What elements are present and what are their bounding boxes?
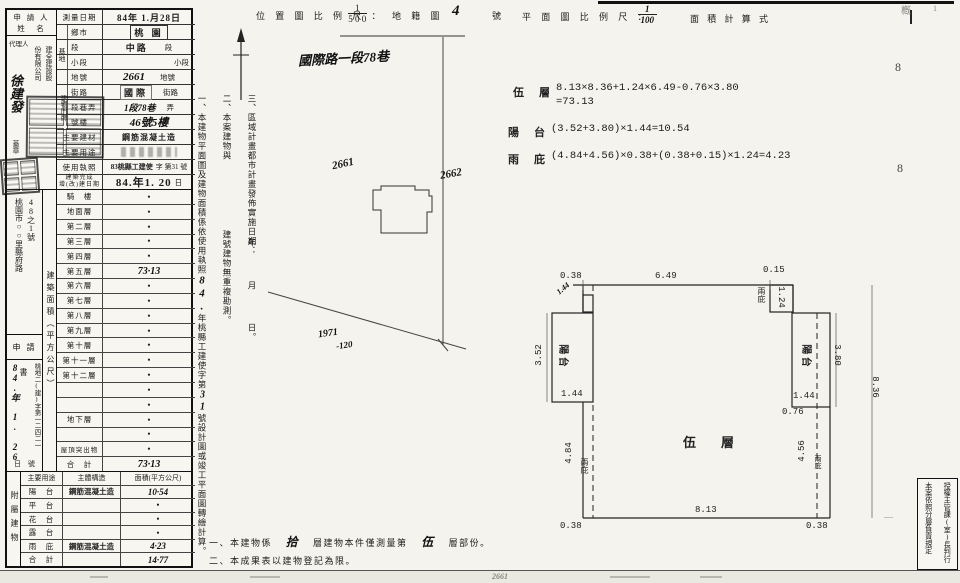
dim-right-canopy: 4.56 (797, 440, 807, 462)
floor-value: • (103, 353, 195, 367)
applicant-title: 申 請 人 姓 名 (7, 10, 56, 36)
row-subsection: 小段 小段 (57, 55, 195, 70)
parcel-no-suffix: 地號 (160, 72, 175, 83)
cut-fragment (610, 576, 650, 578)
attachment-header: 主要用途 主體構造 面積(平方公尺) (21, 472, 195, 486)
dim-bottom-left: 0.38 (560, 521, 582, 531)
row-parcel-no: 地號 2661地號 (57, 70, 195, 85)
attachment-usage: 花 台 (21, 513, 63, 526)
floor-label: 騎 樓 (57, 190, 103, 204)
bottom-note-1b: 層建物本件僅測量第 (313, 538, 408, 548)
row-use-permit: 使用執照 83桃縣工建使字 第31 號 (57, 160, 195, 175)
note1-part-c: 號設計圖或竣工平面圖轉繪計算。 (197, 414, 207, 557)
floor-row: 地面層• (57, 205, 195, 220)
attachment-structure (63, 499, 121, 512)
page-cut-strip: 2661 (0, 570, 960, 583)
parcel-no-value: 2661 (123, 71, 145, 83)
floor-value: • (103, 190, 195, 204)
floor-label (57, 398, 103, 412)
authorization-box: 授權主管課(室)長判行 本案依照分層負責規定 (917, 478, 958, 570)
completion-date-value: 84.年1. 20 (116, 174, 172, 190)
attachment-row-canopy: 雨 庇 鋼筋混凝土造 4·23 (21, 540, 195, 554)
floor-value: • (103, 428, 195, 442)
calc-floor-result: =73.13 (556, 96, 594, 108)
margin-mark-8a: 8 (895, 60, 901, 75)
floor-label: 地面層 (57, 205, 103, 219)
dim-top-right: 0.15 (763, 265, 785, 275)
floor-area-section: 桃園市○○里縣府路 48之1號 申 請 書 桃地二(建)字第一二四二一 84.年… (7, 190, 191, 472)
address-line2: 48之1號 (26, 198, 36, 334)
company-name-col1: 建全建設股 (44, 46, 53, 81)
bottom-note-2: 二、本成果表以建物登記為限。 (209, 554, 356, 567)
calc-floor-expression: 8.13×8.36+1.24×6.49-0.76×3.80 (556, 82, 739, 94)
usage-value-faded-stamp (121, 147, 177, 157)
dim-top: 6.49 (655, 271, 677, 281)
cut-fragment (90, 576, 108, 578)
survey-document-page: 申 請 人 姓 名 代理人 建全建設股 份有限公司 徐建發 蓋章 基地 建物門牌… (0, 0, 960, 583)
attachment-structure (63, 513, 121, 526)
floor-value: • (103, 235, 195, 249)
completion-date-label-1: 建築完成 (65, 175, 93, 182)
completion-date-label: 建築完成 增(改)建日期 (57, 175, 103, 189)
floor-value: • (103, 338, 195, 352)
attachment-area: 10·54 (121, 486, 195, 499)
corner-partial-glyph: 槪 (901, 2, 911, 17)
attachment-usage: 陽 台 (21, 486, 63, 499)
dim-right-balcony-width: 1.44 (793, 391, 815, 401)
site-plan-lines (268, 37, 466, 351)
floor-value: • (103, 383, 195, 397)
subsection-value: 小段 (103, 55, 195, 69)
receipt-number: 桃地二(建)字第一二四二一 (32, 363, 40, 449)
floor-row: 第八層• (57, 309, 195, 324)
floor-plan-title: 伍 層 (683, 432, 740, 451)
floor-row: 第十二層• (57, 368, 195, 383)
house-number-value: 46號5樓 (103, 115, 195, 129)
floor-label: 第三層 (57, 235, 103, 249)
floor-row-total: 合 計73·13 (57, 457, 195, 471)
floor-row: 第二層• (57, 220, 195, 235)
floor-label: 第十一層 (57, 353, 103, 367)
floor-label (57, 383, 103, 397)
section-value: 中路 (126, 41, 148, 54)
section-label: 段 (57, 40, 103, 54)
floor-total-value: 73·13 (103, 457, 195, 471)
attachment-header-area: 面積(平方公尺) (121, 472, 195, 485)
parcel-2661-label: 2661 (331, 156, 355, 172)
floor-row: 第九層• (57, 324, 195, 339)
floor-value: • (103, 413, 195, 427)
floor-label: 第五層 (57, 264, 103, 278)
plan-scale-label: 平 面 圖 比 例 尺 ： (522, 10, 651, 23)
authorization-text-left: 本案依照分層負責規定 (924, 482, 933, 566)
attachment-structure: 鋼筋混凝土造 (63, 540, 121, 553)
address-line1: 桃園市○○里縣府路 (14, 198, 24, 334)
vertical-note-3-month: 月 (246, 281, 258, 291)
parcel-2662-label: 2662 (439, 166, 463, 182)
floor-label: 地下層 (57, 413, 103, 427)
material-value: 鋼筋混凝土造 (103, 130, 195, 144)
margin-dash: — (884, 512, 893, 522)
floor-row: • (57, 383, 195, 398)
right-balcony-label: 陽 台 (800, 344, 815, 367)
floor-row: 第三層• (57, 235, 195, 250)
dim-right-balcony-height: 3.80 (832, 344, 842, 366)
floor-value: • (103, 398, 195, 412)
section-suffix: 段 (165, 42, 173, 53)
attachment-row: 露 台 • (21, 526, 195, 540)
left-sidebar: 桃園市○○里縣府路 48之1號 申 請 書 桃地二(建)字第一二四二一 84.年… (7, 190, 43, 471)
receipt-cell: 桃地二(建)字第一二四二一 84.年 1. 26 日 號 (7, 360, 42, 470)
cadastre-map-unit: 號 (492, 9, 505, 22)
north-arrow-icon (233, 28, 249, 100)
use-permit-label: 使用執照 (57, 160, 103, 174)
plan-scale-fraction: 1 100 (638, 4, 657, 25)
floor-value: • (103, 324, 195, 338)
vertical-note-3-year: 年 (246, 238, 258, 248)
floor-label: 第九層 (57, 324, 103, 338)
area-calc-title: 面 積 計 算 式 (690, 12, 771, 25)
vertical-note-2a: 二、本案建物與 (221, 94, 233, 161)
bottom-note-1a: 一、本建物係 (209, 538, 272, 548)
floor-plan-lines (552, 285, 830, 518)
cut-fragment (700, 576, 722, 578)
floor-row: • (57, 428, 195, 443)
notch-handwritten-dim: 1.44 (555, 281, 572, 297)
dim-building-height: 8.36 (870, 376, 880, 398)
floor-label: 第四層 (57, 249, 103, 263)
row-completion-date: 建築完成 增(改)建日期 84.年1. 20日 (57, 175, 195, 189)
vertical-note-1: 一、本建物平面圖及建物面積係依使用執照84.年桃縣工建使字第31號設計圖或竣工平… (196, 94, 208, 534)
dim-left-balcony-height: 3.52 (534, 344, 544, 366)
margin-mark-8b: 8 (897, 161, 903, 176)
cut-fragment-parcel: 2661 (492, 572, 508, 581)
street-suffix: 街路 (163, 87, 178, 98)
company-name-col2: 份有限公司 (33, 46, 42, 81)
cadastre-map-label: 地 籍 圖 (392, 9, 444, 22)
survey-date-value: 84年 1.月28日 (103, 10, 195, 24)
attachment-usage: 平 台 (21, 499, 63, 512)
floor-value: • (103, 442, 195, 456)
bottom-note-1-level-hw: 伍 (411, 535, 445, 549)
use-permit-number: 字 第31 號 (156, 162, 188, 172)
subsection-label: 小段 (57, 55, 103, 69)
lane-value: 1段78巷 (124, 101, 156, 114)
agent-label: 代理人 (9, 38, 29, 48)
attachment-row-balcony: 陽 台 鋼筋混凝土造 10·54 (21, 486, 195, 500)
floor-value: • (103, 279, 195, 293)
floor-row: 第七層• (57, 294, 195, 309)
floor-label: 第二層 (57, 220, 103, 234)
floor-label: 第八層 (57, 309, 103, 323)
calc-canopy-name: 雨 庇 (508, 151, 547, 167)
cut-fragment (250, 576, 280, 578)
floor-row: 地下層• (57, 413, 195, 428)
attachment-row: 平 台 • (21, 499, 195, 513)
calc-canopy-expression: (4.84+4.56)×0.38+(0.38+0.15)×1.24=4.23 (551, 150, 790, 162)
calc-floor-name: 伍 層 (513, 84, 552, 100)
floor-row: 屋頂突出物• (57, 442, 195, 457)
calc-balcony-name: 陽 台 (508, 124, 547, 140)
floor-value: • (103, 309, 195, 323)
floor-value: • (103, 205, 195, 219)
dim-right-offset: 0.76 (782, 407, 804, 417)
canopy-top-right-label: 兩庇 (757, 287, 766, 303)
floor-total-label: 合 計 (57, 457, 103, 471)
dim-left-balcony-width: 1.44 (561, 389, 583, 399)
bottom-note-1c: 層部份。 (449, 538, 491, 548)
floor-label: 屋頂突出物 (57, 442, 103, 456)
note1-part-b: 年桃縣工建使字第 (197, 314, 207, 390)
row-township: 鄉市 桃 園 (57, 25, 195, 40)
location-scale-fraction: 1 5 0 0 (348, 3, 367, 24)
receipt-tail: 日 號 (7, 459, 42, 469)
left-balcony-label: 陽 台 (557, 344, 572, 367)
bottom-note-1-floors-hw: 拾 (276, 535, 310, 549)
completion-date-unit: 日 (175, 177, 183, 188)
floor-label: 第十二層 (57, 368, 103, 382)
dim-canopy-width: 1.24 (776, 286, 786, 308)
note1-permit-no: 31 (197, 390, 208, 414)
dim-left-canopy: 4.84 (564, 442, 574, 464)
building-footprint (373, 186, 432, 233)
fraction-numerator: 1 (638, 4, 657, 15)
parcel-no-label: 地號 (57, 70, 103, 84)
floor-value: • (103, 368, 195, 382)
dim-bottom-right: 0.38 (806, 521, 828, 531)
canopy-bottom-right-label: 兩庇 (813, 455, 822, 469)
survey-date-label: 測量日期 (57, 10, 103, 24)
attachment-usage: 雨 庇 (21, 540, 63, 553)
floor-row: 第十層• (57, 338, 195, 353)
vertical-note-3: 三、區域計畫都市計畫發佈實施日期： (246, 94, 258, 256)
attachment-structure (63, 553, 121, 566)
fraction-numerator: 1 (348, 3, 367, 14)
attachment-header-usage: 主要用途 (21, 472, 63, 485)
seal-note: 蓋章 (11, 140, 21, 154)
attachment-area: 4·23 (121, 540, 195, 553)
fraction-denominator: 5 0 0 (348, 14, 367, 24)
receipt-date: 84.年 1. 26 (9, 363, 20, 462)
floor-row: 騎 樓• (57, 190, 195, 205)
application-label: 申 請 書 (7, 335, 42, 360)
applicant-title-line2: 姓 名 (7, 23, 56, 34)
floor-plan-dashed (593, 285, 817, 518)
attachment-area: • (121, 526, 195, 539)
company-seal-stamp (26, 96, 105, 159)
attachment-area: • (121, 513, 195, 526)
township-value-stamp: 桃 園 (130, 25, 167, 40)
floor-value-5f: 73·13 (103, 264, 195, 278)
floor-value: • (103, 220, 195, 234)
bottom-note-1: 一、本建物係 拾 層建物本件僅測量第 伍 層部份。 (209, 533, 491, 550)
attachment-header-structure: 主體構造 (63, 472, 121, 485)
row-section: 段 中路段 (57, 40, 195, 55)
parcel-1971-sub-label: -120 (335, 339, 353, 351)
applicant-title-line1: 申 請 人 (7, 12, 56, 23)
dim-bottom: 8.13 (695, 505, 717, 515)
floor-label: 第六層 (57, 279, 103, 293)
agent-name: 徐建發 (8, 74, 23, 113)
floor-row: • (57, 398, 195, 413)
survey-form-table: 申 請 人 姓 名 代理人 建全建設股 份有限公司 徐建發 蓋章 基地 建物門牌… (5, 8, 193, 568)
vertical-note-2b: 建號建物無重複勘測。 (221, 230, 233, 325)
floor-value: • (103, 249, 195, 263)
row-survey-date: 測量日期 84年 1.月28日 (57, 10, 195, 25)
township-label: 鄉市 (57, 25, 103, 39)
floor-row: 第六層• (57, 279, 195, 294)
attachment-area: • (121, 499, 195, 512)
dim-top-left: 0.38 (560, 271, 582, 281)
street-annotation: 國際路一段78巷 (298, 46, 390, 70)
canopy-bottom-left-label: 兩庇 (580, 458, 589, 474)
cadastre-map-number: 4 (452, 3, 460, 20)
floor-area-strip-label: 建築面積（平方公尺） (43, 190, 57, 471)
attachment-row-total: 合 計 14·77 (21, 553, 195, 566)
attachment-strip-label: 附屬建物 (7, 472, 21, 566)
attachment-structure: 鋼筋混凝土造 (63, 486, 121, 499)
fraction-denominator: 100 (638, 15, 657, 25)
floor-rows: 騎 樓• 地面層• 第二層• 第三層• 第四層• 第五層73·13 第六層• 第… (57, 190, 195, 471)
office-seal-stamp (0, 157, 40, 196)
attachment-usage: 合 計 (21, 553, 63, 566)
floor-row-5f: 第五層73·13 (57, 264, 195, 279)
attachment-structure (63, 526, 121, 539)
address-box: 桃園市○○里縣府路 48之1號 (7, 190, 42, 335)
note1-permit-year: 84. (196, 275, 208, 314)
calc-balcony-expression: (3.52+3.80)×1.44=10.54 (551, 123, 690, 135)
floor-label (57, 428, 103, 442)
attachment-usage: 露 台 (21, 526, 63, 539)
corner-partial-glyph2: 1 (933, 4, 937, 13)
attachment-row: 花 台 • (21, 513, 195, 527)
vertical-note-3-day: 日。 (246, 323, 258, 342)
lane-suffix: 弄 (167, 102, 175, 113)
floor-label: 第七層 (57, 294, 103, 308)
use-permit-stamp: 83桃縣工建使 (111, 162, 153, 172)
attachment-area: 14·77 (121, 553, 195, 566)
floor-value: • (103, 294, 195, 308)
completion-date-label-2: 增(改)建日期 (59, 182, 100, 189)
dimension-lines (547, 280, 872, 518)
floor-row: 第四層• (57, 249, 195, 264)
floor-label: 第十層 (57, 338, 103, 352)
parcel-1971-label: 1971 (317, 327, 338, 341)
attachment-section: 附屬建物 主要用途 主體構造 面積(平方公尺) 陽 台 鋼筋混凝土造 10·54… (7, 472, 191, 566)
attachment-rows: 主要用途 主體構造 面積(平方公尺) 陽 台 鋼筋混凝土造 10·54 平 台 … (21, 472, 195, 566)
note1-part-a: 一、本建物平面圖及建物面積係依使用執照 (197, 94, 207, 275)
floor-row: 第十一層• (57, 353, 195, 368)
authorization-text-right: 授權主管課(室)長判行 (942, 482, 951, 566)
street-value-stamp: 國際 (120, 85, 152, 100)
